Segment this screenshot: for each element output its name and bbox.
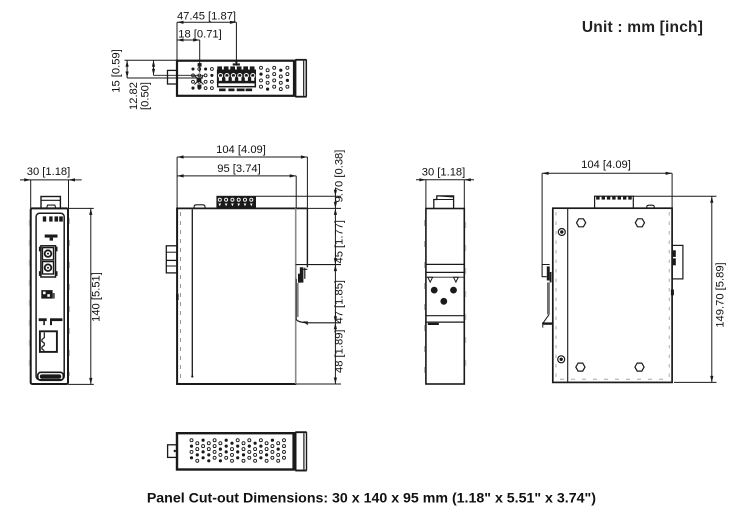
svg-text:47 [1.85]: 47 [1.85] xyxy=(334,280,346,324)
svg-text:12.82: 12.82 xyxy=(128,82,140,110)
svg-text:Unit : mm [inch]: Unit : mm [inch] xyxy=(582,19,703,36)
svg-text:45 [1.77]: 45 [1.77] xyxy=(334,220,346,264)
svg-text:30 [1.18]: 30 [1.18] xyxy=(27,166,71,178)
svg-text:18 [0.71]: 18 [0.71] xyxy=(178,28,222,40)
svg-text:104 [4.09]: 104 [4.09] xyxy=(216,144,266,156)
svg-text:Panel Cut-out Dimensions: 30 x: Panel Cut-out Dimensions: 30 x 140 x 95 … xyxy=(147,491,596,507)
svg-text:48 [1.89]: 48 [1.89] xyxy=(334,329,346,373)
svg-text:95 [3.74]: 95 [3.74] xyxy=(217,163,261,175)
svg-text:47.45 [1.87]: 47.45 [1.87] xyxy=(177,11,236,23)
svg-text:104 [4.09]: 104 [4.09] xyxy=(581,159,631,171)
svg-text:149.70 [5.89]: 149.70 [5.89] xyxy=(715,262,727,327)
svg-text:140 [5.51]: 140 [5.51] xyxy=(91,272,103,322)
svg-text:9.70 [0.38]: 9.70 [0.38] xyxy=(334,150,346,203)
svg-text:[0.50]: [0.50] xyxy=(140,82,152,110)
svg-text:30 [1.18]: 30 [1.18] xyxy=(422,166,466,178)
svg-text:15 [0.59]: 15 [0.59] xyxy=(110,49,122,93)
